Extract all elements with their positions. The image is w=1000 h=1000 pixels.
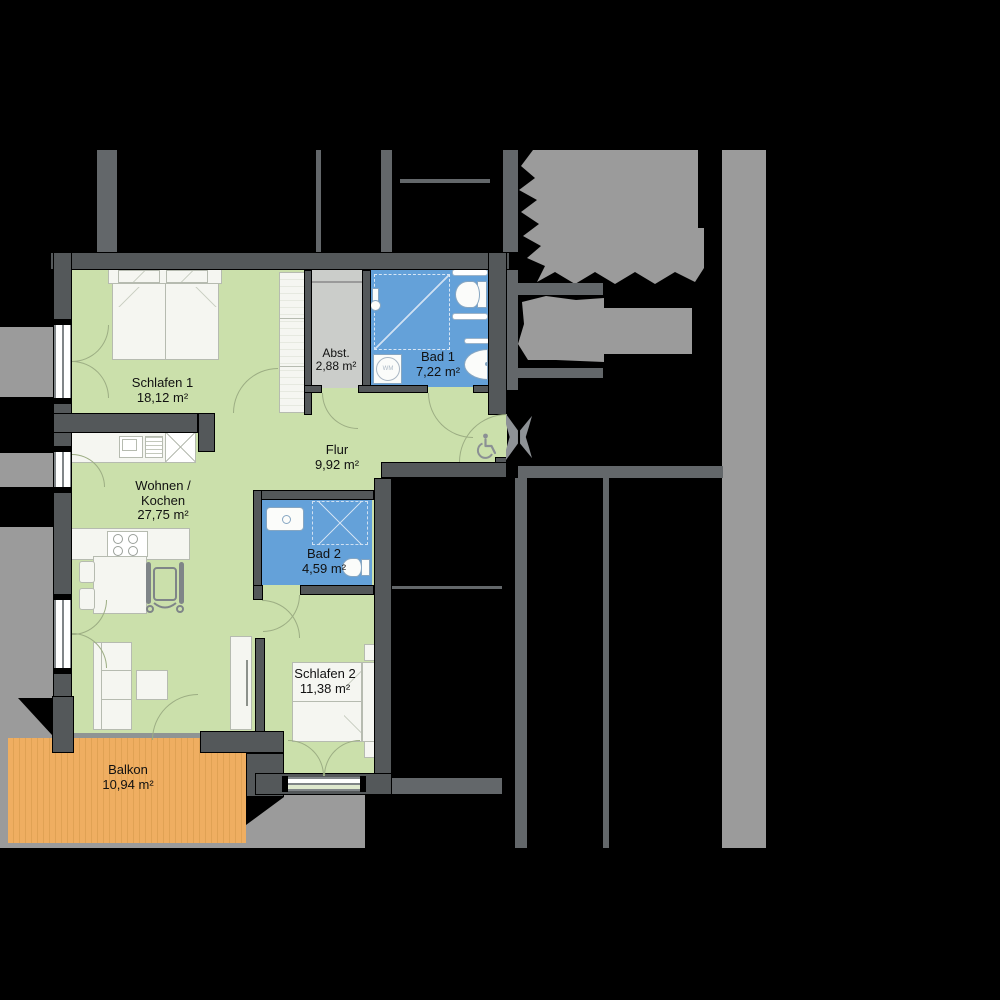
kitchen-sink-basin xyxy=(122,439,137,451)
stove-burner xyxy=(128,534,138,544)
room-area: 11,38 m² xyxy=(276,682,374,697)
room-area: 18,12 m² xyxy=(105,391,220,406)
sofa-cushion-line xyxy=(102,699,131,700)
window-cap xyxy=(53,446,72,452)
tv-icon xyxy=(246,660,248,706)
wardrobe-divider xyxy=(279,366,305,367)
window-cap xyxy=(360,776,366,792)
room-label-abstellraum: Abst. 2,88 m² xyxy=(303,347,369,374)
window-cap xyxy=(53,487,72,493)
neighbor-wall xyxy=(392,586,502,589)
wheelchair-accessibility-icon xyxy=(472,432,498,460)
room-area: 2,88 m² xyxy=(303,360,369,373)
window-schlafen2 xyxy=(288,777,360,791)
bed-pillow xyxy=(166,270,208,283)
stairwell-break-shape xyxy=(515,148,707,290)
grab-bar xyxy=(452,313,488,320)
wall-kitchen-corner xyxy=(198,413,215,452)
shower-icon xyxy=(374,274,450,350)
room-area: 10,94 m² xyxy=(80,778,176,793)
wall-schlafen1-bottom xyxy=(53,413,198,433)
room-label-balkon: Balkon 10,94 m² xyxy=(80,763,176,792)
bed-fold-mark xyxy=(344,710,361,738)
walkway-break-shape xyxy=(516,294,692,366)
neighbor-wall xyxy=(603,478,609,848)
wall-flur-bottom xyxy=(381,462,507,478)
exterior-left-patch-1 xyxy=(0,327,53,397)
bed-divider xyxy=(293,701,361,702)
shower-icon xyxy=(312,501,368,545)
room-name: Kochen xyxy=(115,494,211,509)
exterior-left-patch-2 xyxy=(0,453,53,487)
kitchen-drainer xyxy=(145,436,163,458)
wardrobe xyxy=(279,272,305,413)
room-label-flur: Flur 9,92 m² xyxy=(298,443,376,472)
room-name: Schlafen 2 xyxy=(276,667,374,682)
stove-burner xyxy=(113,534,123,544)
neighbor-wall xyxy=(316,150,321,253)
room-label-schlafen1: Schlafen 1 18,12 m² xyxy=(105,376,220,405)
kitchen-appliance-box xyxy=(165,431,196,463)
window-cap xyxy=(53,594,72,600)
bed-pillow xyxy=(118,270,160,283)
wall-bad2-bottom xyxy=(300,585,374,595)
wardrobe-divider xyxy=(279,318,305,319)
neighbor-wall xyxy=(518,466,723,478)
wall-bad2-hinge xyxy=(253,585,263,600)
room-label-bad2: Bad 2 4,59 m² xyxy=(282,547,366,576)
stove-burner xyxy=(113,546,123,556)
toilet-icon xyxy=(455,281,480,308)
neighbor-wall xyxy=(503,150,518,252)
tv-board xyxy=(230,636,252,730)
wall-right-top xyxy=(488,252,507,415)
wall-schlafen1-flur xyxy=(304,270,312,415)
window-cap xyxy=(53,398,72,404)
corridor-band xyxy=(722,150,766,848)
window-cap xyxy=(53,319,72,325)
room-name: Flur xyxy=(298,443,376,458)
room-name: Abst. xyxy=(303,347,369,360)
room-name: Bad 1 xyxy=(398,350,478,365)
bed-divider xyxy=(165,284,166,359)
room-label-wohnen-kochen: Wohnen / Kochen 27,75 m² xyxy=(115,479,211,523)
wall-right-vertical xyxy=(374,478,392,775)
neighbor-wall xyxy=(503,368,603,378)
room-label-schlafen2: Schlafen 2 11,38 m² xyxy=(276,667,374,696)
wall-wohnen-schlafen2 xyxy=(255,638,265,740)
room-label-bad1: Bad 1 7,22 m² xyxy=(398,350,478,379)
wall-balcony-corner xyxy=(200,731,284,753)
room-area: 27,75 m² xyxy=(115,508,211,523)
neighbor-wall xyxy=(97,150,117,255)
floor-plan: WM xyxy=(0,0,1000,1000)
bed-fold-mark xyxy=(118,287,140,307)
room-area: 9,92 m² xyxy=(298,458,376,473)
neighbor-wall xyxy=(392,778,502,794)
neighbor-wall xyxy=(503,283,603,295)
window-schlafen1 xyxy=(54,325,71,398)
room-area: 7,22 m² xyxy=(398,365,478,380)
wall-top xyxy=(50,252,510,270)
neighbor-wall xyxy=(515,478,527,848)
neighbor-wall xyxy=(381,150,392,253)
window-cap xyxy=(53,668,72,674)
room-name: Schlafen 1 xyxy=(105,376,220,391)
washbasin-bowl xyxy=(282,515,291,524)
window-wohnen xyxy=(54,600,71,668)
room-name: Bad 2 xyxy=(282,547,366,562)
wall-abst-bad1 xyxy=(362,270,371,393)
wall-bad2-top xyxy=(253,490,374,500)
grab-bar xyxy=(464,338,490,344)
window-kitchen xyxy=(54,452,71,487)
grab-bar xyxy=(452,269,488,276)
chair xyxy=(79,561,95,583)
wheelchair-at-table-icon xyxy=(141,553,189,615)
room-name: Balkon xyxy=(80,763,176,778)
window-cap xyxy=(282,776,288,792)
sofa-cushion-line xyxy=(102,670,131,671)
washing-machine-drum: WM xyxy=(376,357,400,381)
room-name: Wohnen / xyxy=(115,479,211,494)
neighbor-wall xyxy=(400,179,490,183)
wall-bad1-bottom xyxy=(358,385,428,393)
shower-head-icon xyxy=(370,300,381,311)
wall-bad2-left xyxy=(253,490,262,595)
shelf-line xyxy=(312,281,362,283)
wall-abst-bottom xyxy=(304,385,322,393)
room-area: 4,59 m² xyxy=(282,562,366,577)
wall-pillar xyxy=(52,696,74,753)
coffee-table xyxy=(136,670,168,700)
bed-fold-mark xyxy=(195,287,217,307)
stove-burner xyxy=(128,546,138,556)
